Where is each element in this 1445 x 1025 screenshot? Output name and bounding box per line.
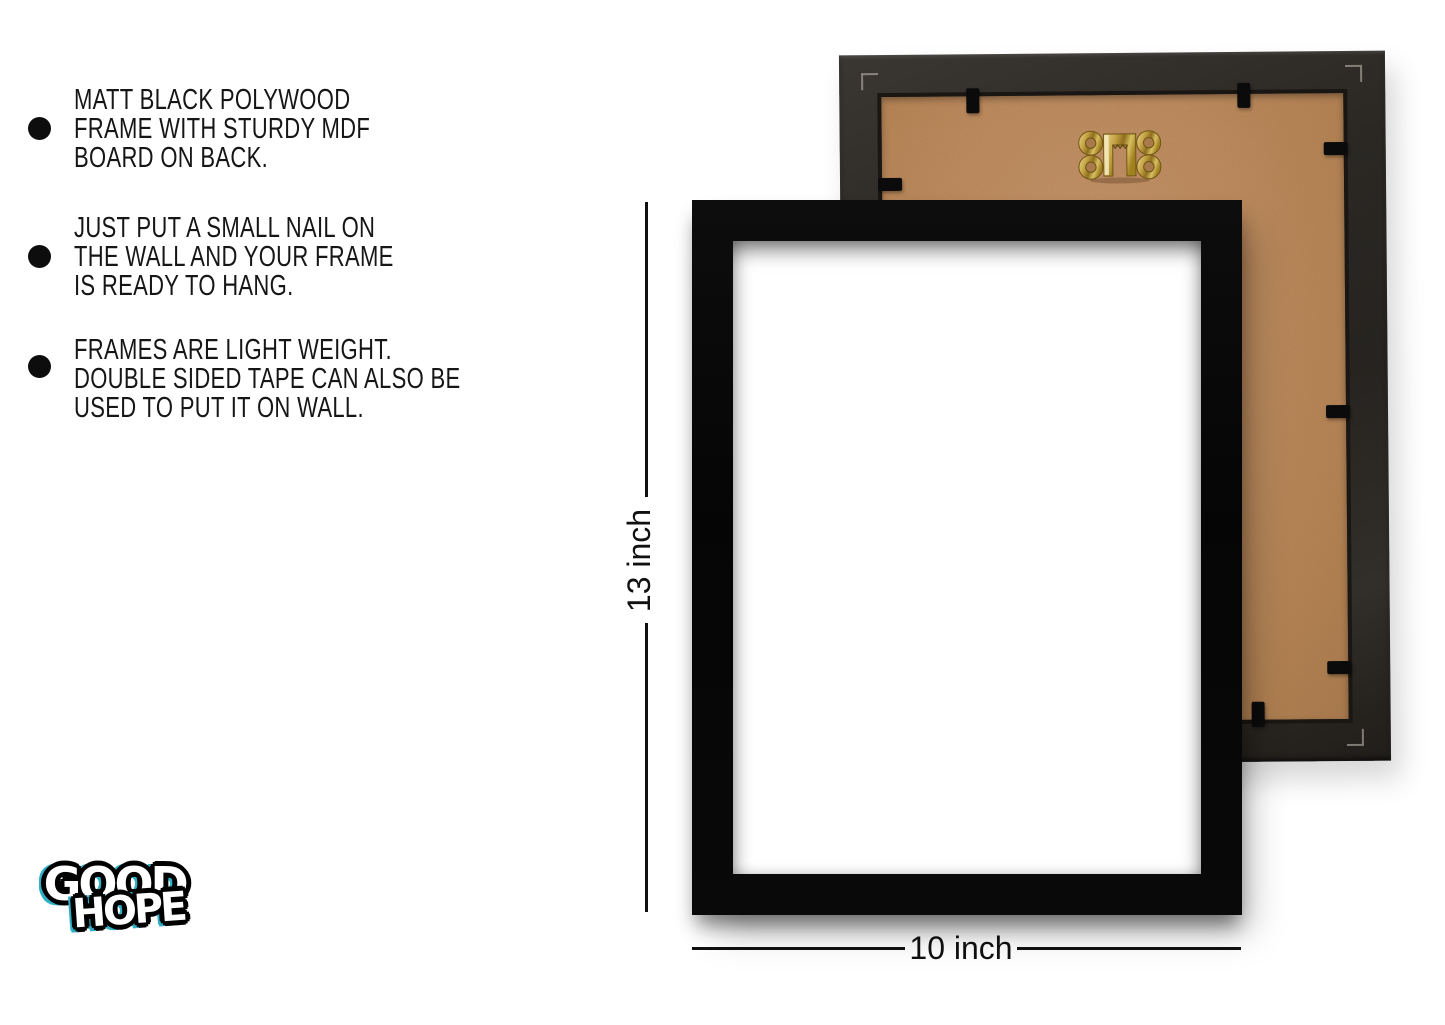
feature-line: BOARD ON BACK. (74, 144, 465, 173)
width-dimension-line-left (692, 947, 905, 950)
feature-item-frame-material: MATT BLACK POLYWOOD FRAME WITH STURDY MD… (28, 86, 588, 173)
bullet-icon (28, 117, 51, 140)
product-infographic: MATT BLACK POLYWOOD FRAME WITH STURDY MD… (0, 0, 1445, 1025)
feature-line: DOUBLE SIDED TAPE CAN ALSO BE (74, 365, 465, 394)
retainer-clip (1326, 405, 1350, 418)
feature-line: IS READY TO HANG. (74, 272, 465, 301)
feature-line: THE WALL AND YOUR FRAME (74, 243, 465, 272)
brand-logo: GOOD HOPE (43, 862, 187, 932)
hanging-hook-icon (1078, 128, 1162, 185)
feature-text: MATT BLACK POLYWOOD FRAME WITH STURDY MD… (74, 86, 465, 173)
frame-front-opening (733, 241, 1201, 874)
feature-text: JUST PUT A SMALL NAIL ON THE WALL AND YO… (74, 214, 465, 301)
miter-corner-mark (861, 73, 878, 90)
retainer-clip (1327, 661, 1351, 674)
bullet-icon (28, 245, 51, 268)
height-dimension-label: 13 inch (584, 495, 696, 625)
height-dimension-line-lower (645, 623, 648, 912)
height-dimension-line-upper (645, 202, 648, 497)
feature-item-lightweight: FRAMES ARE LIGHT WEIGHT. DOUBLE SIDED TA… (28, 336, 588, 423)
feature-text: FRAMES ARE LIGHT WEIGHT. DOUBLE SIDED TA… (74, 336, 465, 423)
width-dimension-line-right (1017, 947, 1241, 950)
brand-logo-word2: HOPE (71, 889, 187, 933)
feature-item-hanging: JUST PUT A SMALL NAIL ON THE WALL AND YO… (28, 214, 588, 301)
miter-corner-mark (1345, 65, 1362, 82)
retainer-clip (1324, 142, 1348, 155)
feature-line: MATT BLACK POLYWOOD (74, 86, 465, 115)
feature-line: USED TO PUT IT ON WALL. (74, 394, 465, 423)
frame-front-view (692, 200, 1242, 915)
retainer-clip (966, 88, 979, 113)
retainer-clip (878, 178, 902, 191)
bullet-icon (28, 355, 51, 378)
miter-corner-mark (1347, 729, 1364, 746)
retainer-clip (1252, 702, 1265, 727)
feature-line: JUST PUT A SMALL NAIL ON (74, 214, 465, 243)
retainer-clip (1237, 83, 1250, 108)
feature-line: FRAME WITH STURDY MDF (74, 115, 465, 144)
width-dimension-label: 10 inch (905, 928, 1017, 968)
feature-line: FRAMES ARE LIGHT WEIGHT. (74, 336, 465, 365)
